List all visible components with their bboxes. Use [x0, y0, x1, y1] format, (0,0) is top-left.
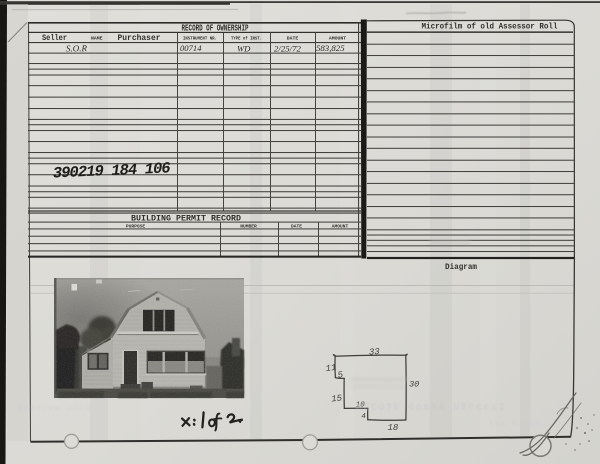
- svg-text:TYPE of INST.: TYPE of INST.: [231, 35, 262, 41]
- svg-text:15: 15: [331, 393, 343, 404]
- svg-text:Diagram: Diagram: [445, 262, 477, 272]
- svg-text:Microfilm of old Assessor Roll: Microfilm of old Assessor Roll: [422, 22, 558, 32]
- svg-text:583,825: 583,825: [316, 43, 345, 53]
- svg-text:00714: 00714: [180, 43, 202, 53]
- svg-text:18: 18: [388, 423, 399, 433]
- svg-text:NAME: NAME: [91, 35, 103, 41]
- svg-text:MECOTE GONNA VECCOSI: MECOTE GONNA VECCOSI: [356, 403, 506, 414]
- svg-text:S.O.R: S.O.R: [66, 43, 88, 53]
- svg-text:WD: WD: [237, 44, 251, 54]
- svg-text:4: 4: [361, 413, 365, 421]
- svg-text:11: 11: [325, 363, 337, 374]
- svg-text:30: 30: [409, 379, 419, 389]
- svg-text:AMOUNT: AMOUNT: [329, 35, 346, 41]
- svg-text:2/25/72: 2/25/72: [274, 44, 301, 54]
- svg-text:Seller: Seller: [42, 33, 67, 43]
- svg-text:KESTERN AMER: KESTERN AMER: [18, 404, 91, 414]
- svg-text:INSTRUMENT NR.: INSTRUMENT NR.: [183, 35, 217, 41]
- svg-text:Purchaser: Purchaser: [118, 33, 161, 43]
- svg-text:33: 33: [369, 347, 381, 358]
- svg-text:DATE: DATE: [287, 35, 299, 41]
- svg-text:BmA P-TRSL: BmA P-TRSL: [489, 420, 547, 429]
